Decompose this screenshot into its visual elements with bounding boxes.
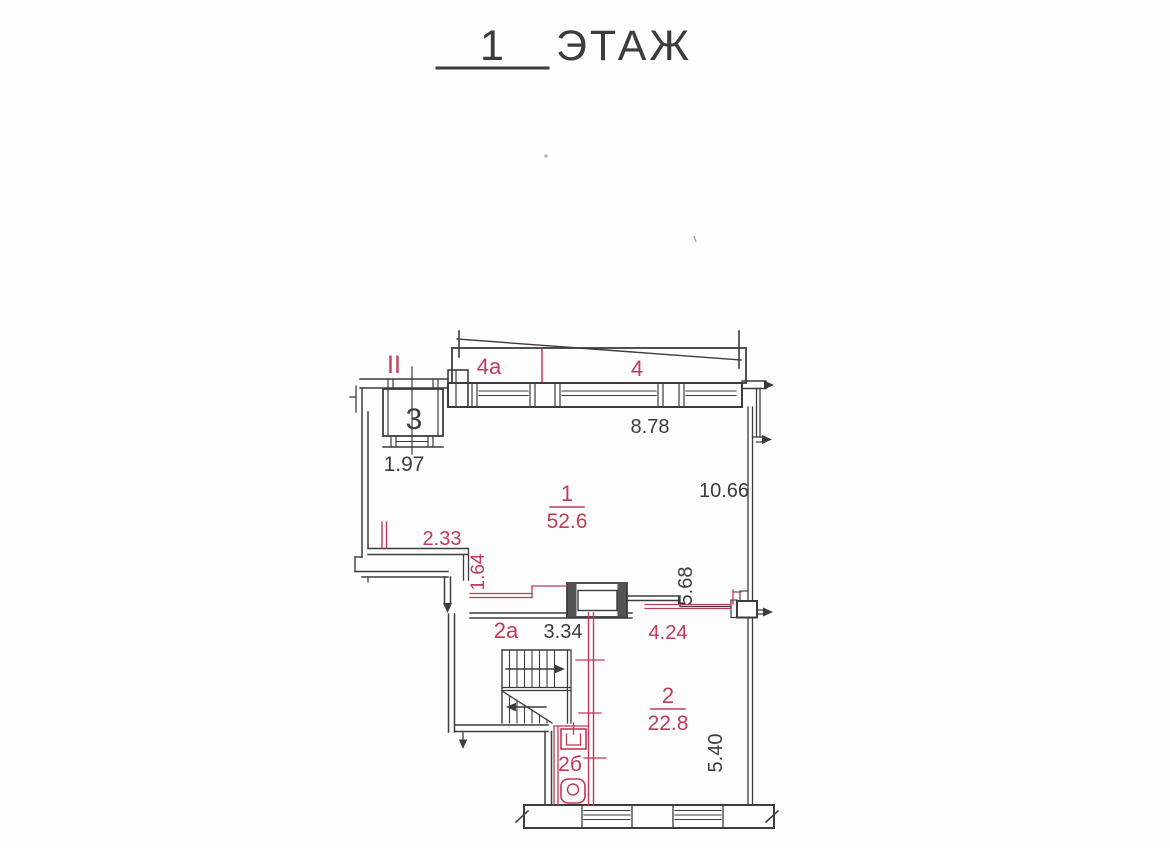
wall-arrow (443, 603, 452, 613)
room1-label: 1 52.6 (547, 481, 588, 533)
wall-arrow (459, 740, 467, 750)
room1-number: 1 (561, 481, 573, 506)
dim-5-40: 5.40 (705, 734, 727, 773)
room3-label: 3 (406, 403, 423, 436)
dim-3-34: 3.34 (544, 621, 583, 643)
floorplan-drawing: 1 ЭТАЖ (0, 0, 1170, 848)
dim-1-97: 1.97 (384, 453, 425, 476)
room2-number: 2 (662, 683, 674, 708)
dim-1-64: 1.64 (468, 553, 489, 590)
floor-word: ЭТАЖ (556, 22, 692, 70)
entrance-tambour (567, 583, 627, 617)
dim-2-33: 2.33 (423, 528, 462, 550)
room2b-label: 2б (558, 753, 582, 776)
scanned-floorplan-page: 1 ЭТАЖ (0, 0, 1170, 848)
scan-speck (694, 236, 696, 242)
wall-arrow (762, 435, 772, 444)
room1-area: 52.6 (547, 510, 588, 533)
dim-5-68: 5.68 (675, 567, 697, 606)
wall-end-tick (766, 811, 778, 822)
dim-8-78: 8.78 (631, 416, 670, 438)
window-glazing (479, 391, 736, 396)
toilet-fixture (561, 779, 585, 803)
wall-end-tick (516, 811, 528, 822)
staircase (502, 650, 571, 723)
corner-block (448, 370, 468, 407)
bottom-wall (516, 805, 778, 828)
entrance-marker-label: II (387, 351, 401, 379)
floor-title: 1 ЭТАЖ (437, 22, 692, 70)
wall-arrow (763, 608, 773, 617)
room4-label: 4 (631, 356, 643, 381)
right-wall (742, 381, 774, 806)
window-glazing (584, 811, 721, 820)
room2-area: 22.8 (648, 712, 689, 735)
washbasin-fixture (561, 723, 586, 749)
wall-arrow (764, 381, 774, 390)
room2a-label: 2а (494, 618, 519, 643)
top-wall (448, 383, 742, 407)
dim-10-66: 10.66 (699, 480, 749, 502)
red-door-mark (382, 522, 387, 548)
scan-speck (544, 154, 548, 158)
dim-4-24: 4.24 (649, 622, 688, 644)
room2-label: 2 22.8 (648, 683, 689, 735)
floor-number: 1 (480, 22, 504, 70)
room4a-label: 4а (477, 354, 502, 379)
